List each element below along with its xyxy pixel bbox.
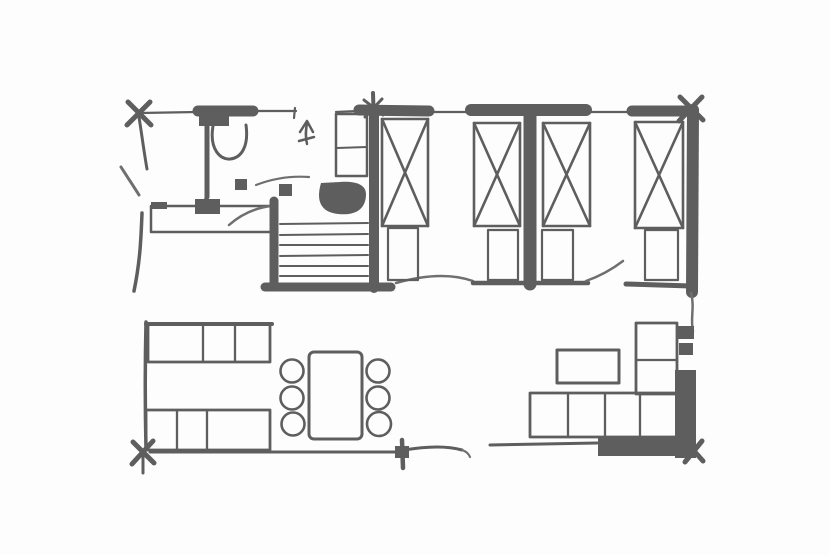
corner-post-bottom-left xyxy=(132,441,154,473)
floor-plan-page xyxy=(0,0,830,555)
bathroom xyxy=(151,111,277,232)
staircase xyxy=(274,201,368,287)
bed-2 xyxy=(474,123,520,280)
foot-locker xyxy=(542,230,573,280)
chair xyxy=(367,387,390,410)
chair xyxy=(367,412,391,436)
sketch-line xyxy=(256,177,309,185)
dining-chairs xyxy=(281,360,392,437)
bedroom-left xyxy=(382,119,520,280)
chair xyxy=(281,387,304,410)
sink-fixture xyxy=(195,199,220,214)
faucet-mark xyxy=(151,202,167,209)
corner-sofa xyxy=(530,323,677,437)
foot-locker xyxy=(488,230,518,280)
floor-plan-sketch xyxy=(0,0,830,555)
door-post-mark-right xyxy=(279,184,292,196)
wash-basin xyxy=(319,182,366,215)
bathroom-wall xyxy=(204,114,207,207)
bedroom-right xyxy=(542,122,683,280)
chair xyxy=(282,413,305,436)
toilet-bowl xyxy=(212,125,246,159)
hallway xyxy=(235,114,368,287)
chair xyxy=(367,360,390,383)
foot-locker xyxy=(645,230,678,280)
bed-1 xyxy=(382,119,428,280)
living-dining xyxy=(146,324,391,450)
up-arrow xyxy=(299,121,314,144)
walls xyxy=(121,93,703,473)
bed-4 xyxy=(635,122,683,280)
toilet-tank xyxy=(199,111,229,126)
dining-table xyxy=(309,352,362,439)
sofa-upper xyxy=(146,324,272,362)
chair xyxy=(281,360,304,383)
bathroom-door-swing xyxy=(229,206,271,225)
left-wall xyxy=(121,117,147,449)
bedroom-bottom-walls xyxy=(265,261,691,287)
closet-cabinet xyxy=(336,114,367,176)
coffee-table xyxy=(557,350,619,383)
foot-locker xyxy=(388,228,418,280)
door-post-mark-left xyxy=(235,179,247,190)
lounge-corner xyxy=(530,323,677,437)
bed-3 xyxy=(542,123,590,280)
sofa-lower xyxy=(146,410,270,450)
bottom-wall xyxy=(150,438,696,468)
